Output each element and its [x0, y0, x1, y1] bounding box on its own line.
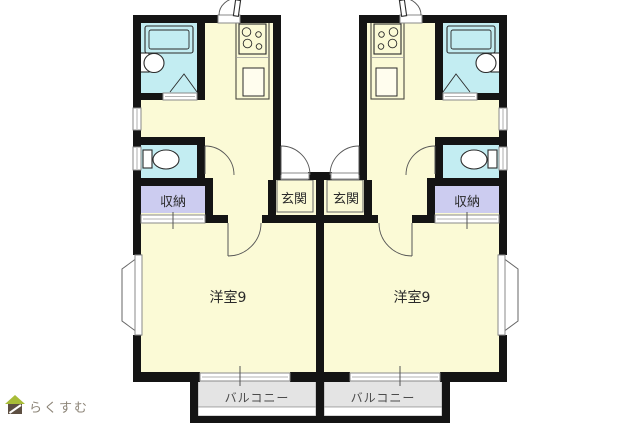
- brand-text: らくすむ: [29, 401, 89, 416]
- unit-left: [122, 0, 320, 423]
- entrance-label-right: 玄関: [333, 192, 359, 207]
- brand-watermark: らくすむ: [5, 395, 89, 416]
- room-label-left: 洋室9: [210, 289, 247, 306]
- entrance-label-left: 玄関: [281, 192, 307, 207]
- unit-right: [320, 0, 518, 423]
- floor-plan-drawing: 洋室9 洋室9 玄関 玄関 収納 収納 バルコニー バルコニー らくすむ: [0, 0, 640, 425]
- balcony-label-left: バルコニー: [225, 391, 290, 405]
- balcony-label-right: バルコニー: [351, 391, 416, 405]
- storage-label-left: 収納: [160, 195, 186, 210]
- floor-plan-page: 洋室9 洋室9 玄関 玄関 収納 収納 バルコニー バルコニー らくすむ: [0, 0, 640, 425]
- house-icon: [5, 395, 25, 414]
- room-label-right: 洋室9: [394, 289, 431, 306]
- storage-label-right: 収納: [454, 195, 480, 210]
